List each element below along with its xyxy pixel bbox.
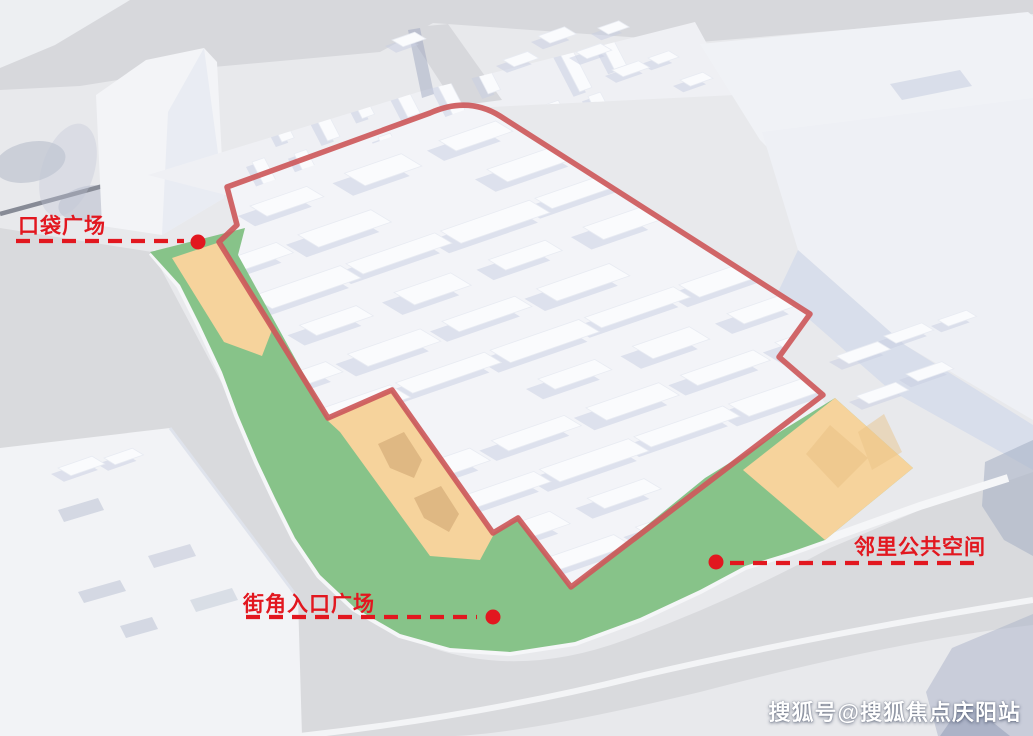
screenshot-canvas: 口袋广场 街角入口广场 邻里公共空间 搜狐号@搜狐焦点庆阳站: [0, 0, 1033, 736]
label-corner-entrance-plaza: 街角入口广场: [243, 588, 375, 618]
leader-dot-neighborhood-space: [709, 555, 724, 570]
site-plan-3d-rendering: [0, 0, 1033, 736]
watermark-sohu: 搜狐号@搜狐焦点庆阳站: [769, 695, 1021, 727]
label-pocket-plaza: 口袋广场: [18, 210, 106, 240]
leader-dot-pocket-plaza: [191, 235, 206, 250]
leader-dot-corner-plaza: [486, 610, 501, 625]
label-neighborhood-public-space: 邻里公共空间: [854, 531, 986, 561]
